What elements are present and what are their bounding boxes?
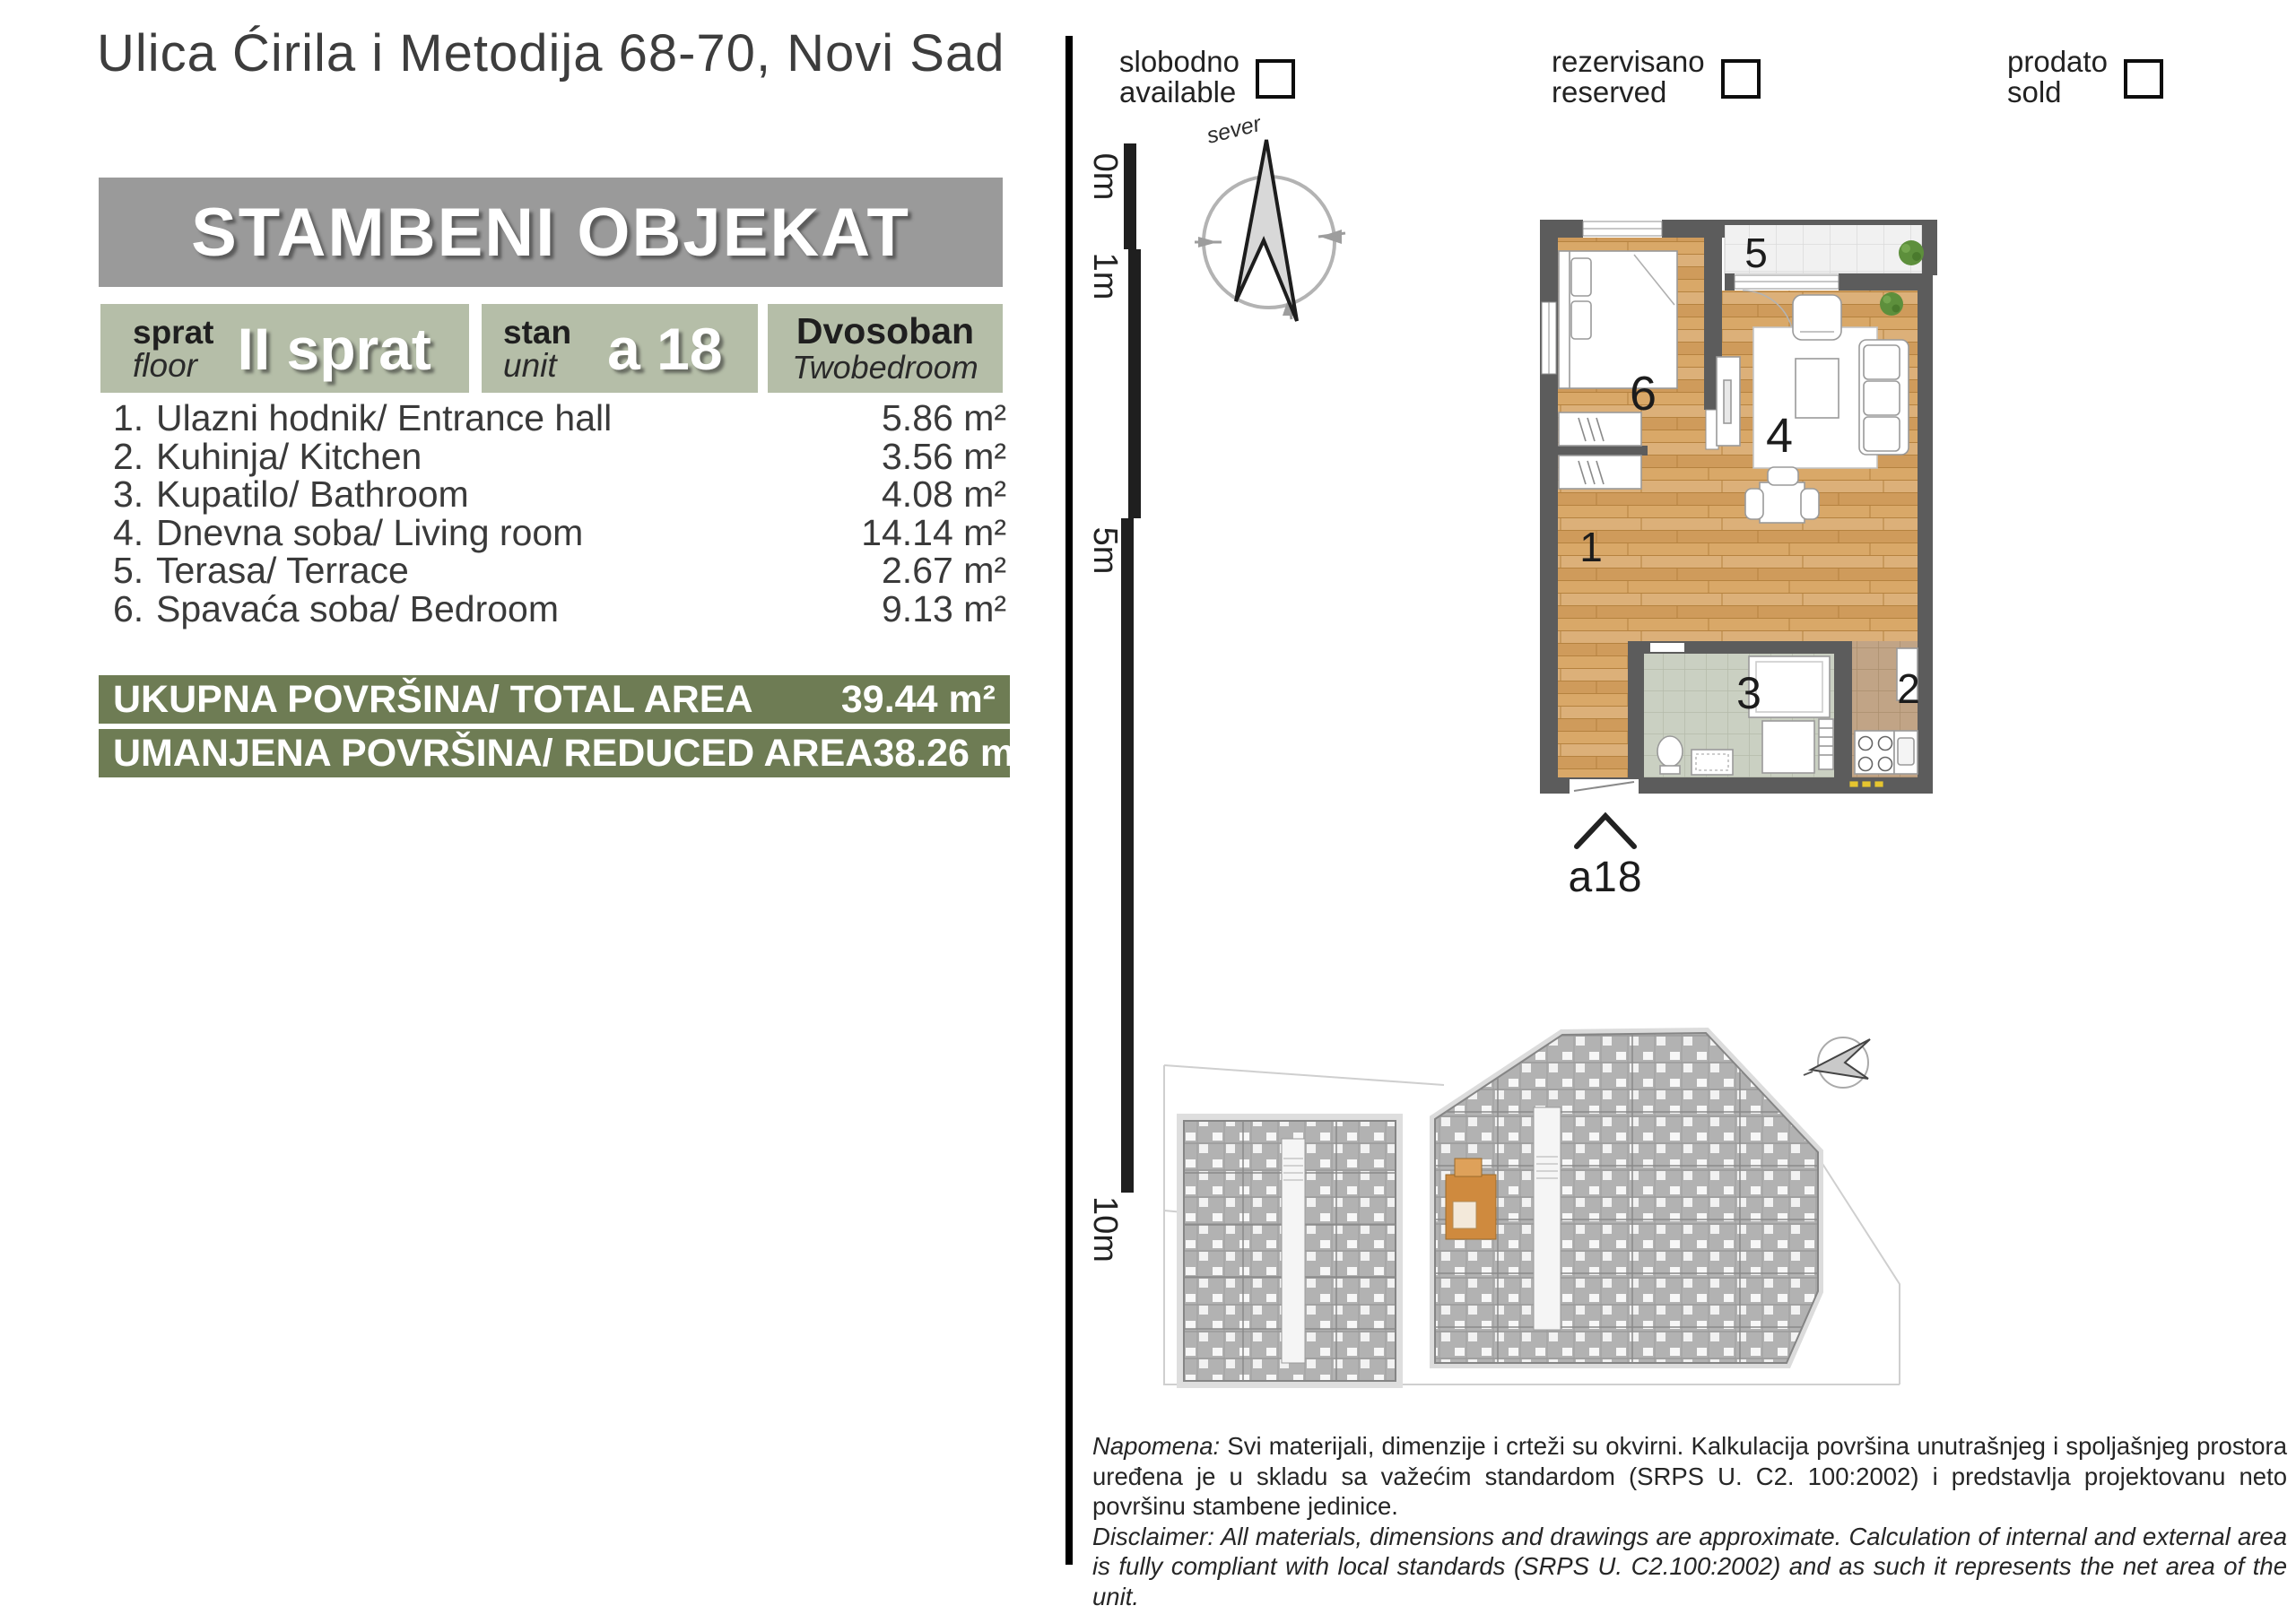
pillow <box>1571 301 1591 339</box>
floorplan-sheet: Ulica Ćirila i Metodija 68-70, Novi Sad … <box>0 0 2296 1623</box>
north-compass: sever <box>1182 117 1361 350</box>
room-row-5: 5. Terasa/ Terrace 2.67 m² <box>99 550 1010 588</box>
room-num: 3. <box>113 473 143 516</box>
room-name: Spavaća soba/ Bedroom <box>156 588 559 630</box>
total-area-value: 39.44 m² <box>841 678 996 722</box>
tv <box>1724 380 1731 423</box>
scalebar-seg-0-1m <box>1124 143 1136 249</box>
legend-available-en: available <box>1119 77 1239 108</box>
unit-tag-label: a18 <box>1568 854 1642 901</box>
address-title: Ulica Ćirila i Metodija 68-70, Novi Sad <box>97 23 1005 83</box>
legend-checkbox-reserved <box>1721 59 1761 99</box>
floor-value: II sprat <box>237 315 430 383</box>
legend-checkbox-sold <box>2124 59 2163 99</box>
shower-tray <box>1762 721 1814 773</box>
note-serbian-label: Napomena: <box>1092 1432 1220 1460</box>
room-name: Ulazni hodnik/ Entrance hall <box>156 397 612 439</box>
toilet <box>1657 736 1683 767</box>
plan-label-room3: 3 <box>1736 668 1761 718</box>
plant-icon <box>1899 240 1924 265</box>
room-num: 1. <box>113 397 143 439</box>
room-num: 5. <box>113 550 143 592</box>
total-area-label: UKUPNA POVRŠINA/ TOTAL AREA <box>113 678 753 722</box>
type-sr: Dvosoban <box>768 312 1003 351</box>
room-area: 3.56 m² <box>882 436 1006 478</box>
reduced-area-label: UMANJENA POVRŠINA/ REDUCED AREA <box>113 732 873 776</box>
armchair <box>1793 295 1841 340</box>
plan-label-room4: 4 <box>1766 409 1793 463</box>
scale-label-5m: 5m <box>1086 515 1124 586</box>
scale-label-0m: 0m <box>1086 141 1124 213</box>
floor-label-en: floor <box>133 349 213 382</box>
room-row-2: 2. Kuhinja/ Kitchen 3.56 m² <box>99 436 1010 474</box>
coffee-table <box>1796 359 1839 418</box>
unit-label-en: unit <box>503 349 571 382</box>
building-banner: STAMBENI OBJEKAT <box>99 178 1003 287</box>
plan-label-room2: 2 <box>1897 665 1920 712</box>
note-serbian: Napomena: Svi materijali, dimenzije i cr… <box>1092 1431 2287 1522</box>
note-english: Disclaimer: All materials, dimensions an… <box>1092 1522 2287 1612</box>
plan-label-room1: 1 <box>1579 524 1603 570</box>
room-name: Kuhinja/ Kitchen <box>156 436 422 478</box>
floor-label-sr: sprat <box>133 316 213 349</box>
legend-sold-en: sold <box>2007 77 2108 108</box>
notes-block: Napomena: Svi materijali, dimenzije i cr… <box>1092 1431 2287 1611</box>
apartment-floorplan: 1 2 3 4 5 6 a18 <box>1534 217 1937 907</box>
note-english-text: All materials, dimensions and drawings a… <box>1092 1523 2287 1610</box>
legend-sold-sr: prodato <box>2007 47 2108 77</box>
pillow <box>1571 258 1591 296</box>
room-name: Terasa/ Terrace <box>156 550 409 592</box>
chair <box>1768 467 1798 485</box>
kitchen-sink <box>1898 738 1914 765</box>
site-plan <box>1157 1022 1910 1399</box>
room-num: 4. <box>113 512 143 554</box>
room-list: 1. Ulazni hodnik/ Entrance hall 5.86 m² … <box>99 397 1010 626</box>
room-num: 2. <box>113 436 143 478</box>
room-area: 5.86 m² <box>882 397 1006 439</box>
room-row-6: 6. Spavaća soba/ Bedroom 9.13 m² <box>99 588 1010 627</box>
legend-reserved-sr: rezervisano <box>1552 47 1705 77</box>
type-badge: Dvosoban Twobedroom <box>768 304 1003 393</box>
unit-value: a 18 <box>607 315 722 383</box>
radiator <box>1819 719 1833 769</box>
legend-checkbox-available <box>1256 59 1295 99</box>
site-building-left <box>1177 1114 1403 1388</box>
scale-label-10m: 10m <box>1086 1193 1124 1265</box>
compass-north-label: sever <box>1205 117 1265 149</box>
corridor <box>1534 1107 1561 1330</box>
room-row-4: 4. Dnevna soba/ Living room 14.14 m² <box>99 512 1010 551</box>
room-area: 14.14 m² <box>861 512 1006 554</box>
legend-available: slobodno available <box>1119 47 1295 108</box>
room-area: 2.67 m² <box>882 550 1006 592</box>
scalebar-seg-1-5m <box>1128 249 1141 518</box>
reduced-area-value: 38.26 m² <box>873 732 1027 776</box>
floor-badge: sprat floor II sprat <box>100 304 469 393</box>
legend-available-sr: slobodno <box>1119 47 1239 77</box>
plant-icon <box>1880 292 1903 316</box>
chair <box>1801 489 1819 519</box>
legend-reserved-en: reserved <box>1552 77 1705 108</box>
threshold-marks <box>1849 781 1883 787</box>
dining-table <box>1760 482 1805 523</box>
building-title: STAMBENI OBJEKAT <box>191 194 910 272</box>
chair <box>1745 489 1763 519</box>
plan-label-room5: 5 <box>1744 230 1768 276</box>
room-name: Kupatilo/ Bathroom <box>156 473 469 516</box>
room-num: 6. <box>113 588 143 630</box>
room-area: 9.13 m² <box>882 588 1006 630</box>
note-english-label: Disclaimer: <box>1092 1523 1214 1550</box>
site-compass-icon <box>1804 1037 1870 1088</box>
site-building-right <box>1435 1033 1818 1363</box>
scalebar-seg-5-10m <box>1121 518 1134 1193</box>
reduced-area-bar: UMANJENA POVRŠINA/ REDUCED AREA 38.26 m² <box>99 729 1010 777</box>
room-name: Dnevna soba/ Living room <box>156 512 583 554</box>
legend-reserved: rezervisano reserved <box>1552 47 1761 108</box>
scale-label-1m: 1m <box>1086 240 1124 312</box>
note-serbian-text: Svi materijali, dimenzije i crteži su ok… <box>1092 1432 2287 1520</box>
bathroom-door-opening <box>1650 643 1684 652</box>
total-area-bar: UKUPNA POVRŠINA/ TOTAL AREA 39.44 m² <box>99 675 1010 724</box>
unit-label-sr: stan <box>503 316 571 349</box>
room-row-1: 1. Ulazni hodnik/ Entrance hall 5.86 m² <box>99 397 1010 436</box>
compass-needle-icon <box>1236 140 1297 321</box>
room-area: 4.08 m² <box>882 473 1006 516</box>
legend-sold: prodato sold <box>2007 47 2163 108</box>
plan-label-room6: 6 <box>1630 367 1657 421</box>
type-en: Twobedroom <box>768 351 1003 385</box>
panel-divider <box>1065 36 1073 1565</box>
room-row-3: 3. Kupatilo/ Bathroom 4.08 m² <box>99 473 1010 512</box>
unit-pointer-chevron-icon <box>1577 816 1634 846</box>
unit-badge: stan unit a 18 <box>482 304 758 393</box>
